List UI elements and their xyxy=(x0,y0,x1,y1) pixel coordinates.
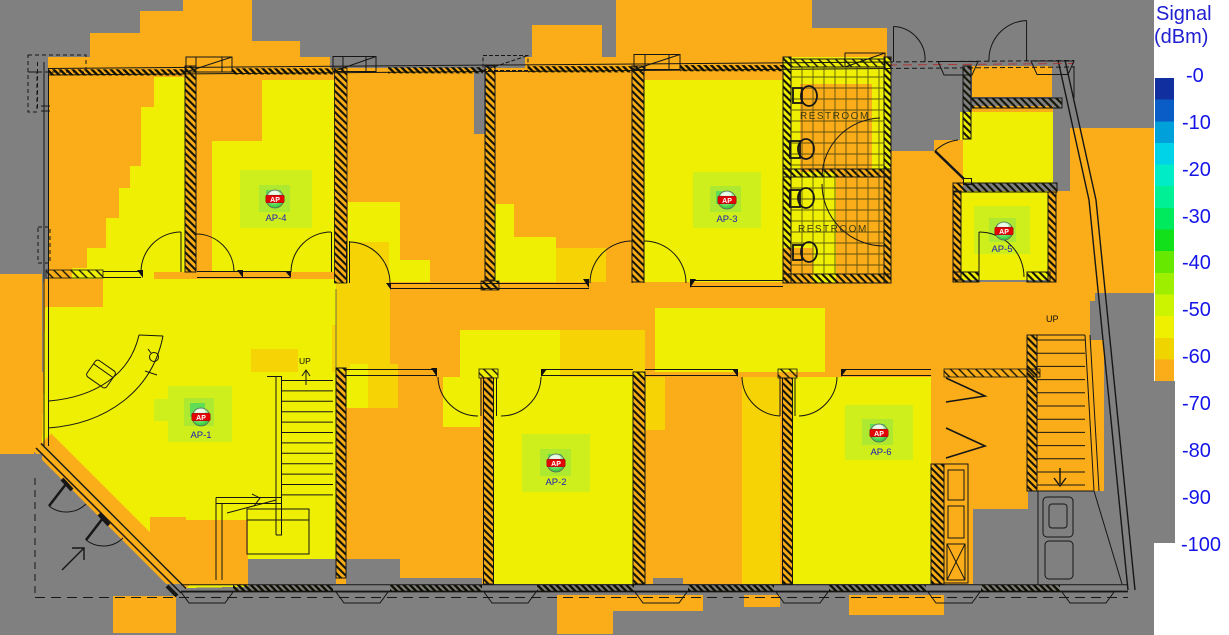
svg-text:AP-2: AP-2 xyxy=(545,477,566,488)
svg-text:UP: UP xyxy=(1046,314,1059,324)
svg-text:-50: -50 xyxy=(1182,299,1211,321)
svg-text:RESTROOM: RESTROOM xyxy=(800,111,870,122)
svg-text:-70: -70 xyxy=(1182,393,1211,415)
svg-text:RESTROOM: RESTROOM xyxy=(798,224,868,235)
svg-text:-80: -80 xyxy=(1182,440,1211,462)
svg-text:(dBm): (dBm) xyxy=(1154,26,1208,48)
svg-text:-60: -60 xyxy=(1182,346,1211,368)
svg-text:AP-5: AP-5 xyxy=(991,244,1012,255)
svg-text:AP-4: AP-4 xyxy=(265,213,286,224)
svg-text:-40: -40 xyxy=(1182,252,1211,274)
svg-text:AP: AP xyxy=(551,461,561,468)
svg-text:-30: -30 xyxy=(1182,206,1211,228)
svg-text:AP: AP xyxy=(196,415,206,422)
svg-text:AP: AP xyxy=(722,198,732,205)
svg-text:AP-1: AP-1 xyxy=(190,430,211,441)
svg-text:-20: -20 xyxy=(1182,159,1211,181)
svg-text:-100: -100 xyxy=(1181,534,1221,556)
svg-text:AP: AP xyxy=(999,229,1009,236)
svg-text:AP-3: AP-3 xyxy=(716,214,737,225)
svg-text:AP: AP xyxy=(270,197,280,204)
svg-text:-10: -10 xyxy=(1182,112,1211,134)
svg-text:Signal: Signal xyxy=(1156,3,1212,25)
svg-text:-90: -90 xyxy=(1182,487,1211,509)
svg-text:UP: UP xyxy=(299,356,311,366)
svg-text:AP: AP xyxy=(874,431,884,438)
svg-text:AP-6: AP-6 xyxy=(870,447,891,458)
svg-text:-0: -0 xyxy=(1186,65,1204,87)
